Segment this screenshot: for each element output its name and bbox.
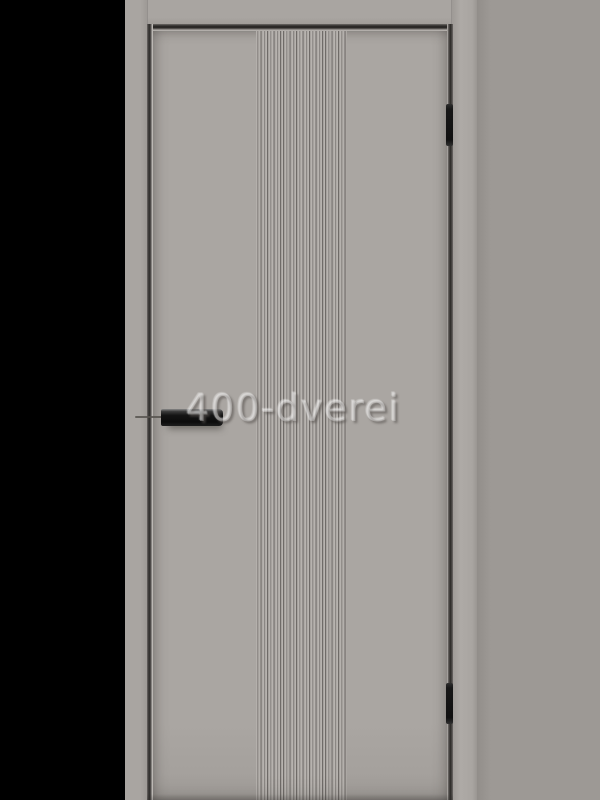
handle-seam-line	[135, 416, 162, 418]
door-frame-top-rail	[147, 0, 452, 24]
frame-gap-top	[147, 24, 452, 31]
watermark-text: 400-dverei	[186, 390, 401, 427]
left-black-letterbox	[0, 0, 125, 800]
door-frame-right-stile	[452, 0, 477, 800]
right-wall-backdrop	[477, 0, 600, 800]
frame-corner-seam-right	[451, 0, 452, 24]
frame-corner-seam-left	[147, 0, 148, 24]
door-frame-left-stile	[125, 0, 147, 800]
floor-shadow	[147, 794, 453, 800]
hinge-bottom-icon	[446, 683, 453, 724]
hinge-top-icon	[446, 104, 453, 146]
product-photo-stage: 400-dverei	[0, 0, 600, 800]
